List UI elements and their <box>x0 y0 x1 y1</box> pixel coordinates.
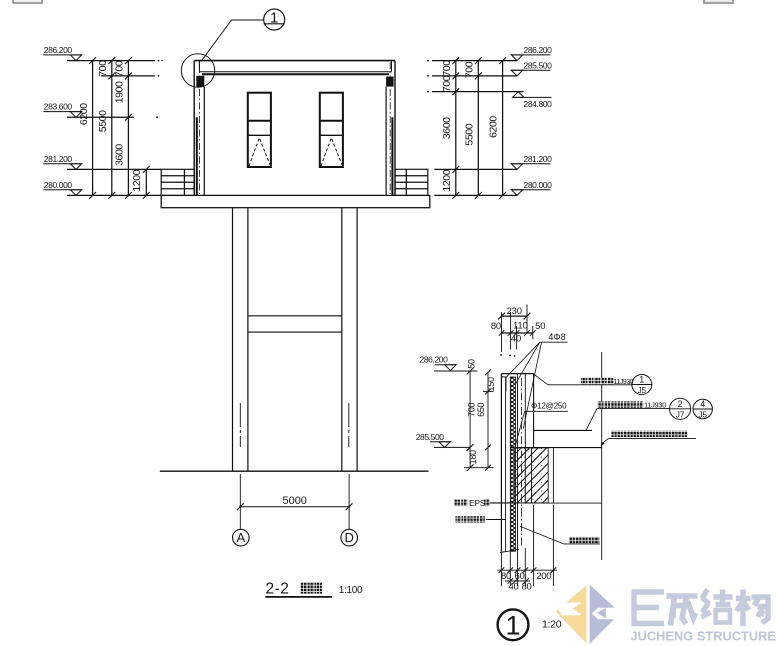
svg-text:1: 1 <box>270 10 278 27</box>
svg-text:110: 110 <box>513 321 528 332</box>
svg-text:1200: 1200 <box>441 169 453 191</box>
svg-text:286.200: 286.200 <box>524 45 553 55</box>
svg-text:1900: 1900 <box>113 81 125 103</box>
svg-text:700: 700 <box>441 60 453 77</box>
svg-text:200: 200 <box>536 571 551 582</box>
svg-text:D: D <box>345 530 354 545</box>
svg-text:286.200: 286.200 <box>44 45 73 55</box>
svg-text:283.600: 283.600 <box>44 102 73 112</box>
svg-text:80: 80 <box>522 582 532 593</box>
svg-text:180: 180 <box>468 450 478 464</box>
svg-text:80: 80 <box>501 571 511 582</box>
svg-text:JUCHENG STRUCTURE: JUCHENG STRUCTURE <box>631 629 776 643</box>
svg-text:3600: 3600 <box>441 117 453 139</box>
svg-text:281.200: 281.200 <box>44 154 73 164</box>
svg-text:1:20: 1:20 <box>542 619 562 631</box>
svg-text:2-2: 2-2 <box>266 580 290 597</box>
svg-text:50: 50 <box>467 359 477 369</box>
svg-text:281.200: 281.200 <box>524 154 553 164</box>
svg-text:A: A <box>236 530 245 545</box>
svg-text:EPS: EPS <box>469 498 486 508</box>
svg-text:80: 80 <box>491 321 501 332</box>
svg-text:2: 2 <box>678 399 683 409</box>
svg-text:Φ12@250: Φ12@250 <box>531 402 567 411</box>
svg-text:4: 4 <box>700 399 705 409</box>
svg-text:280.000: 280.000 <box>44 180 73 190</box>
svg-text:285.500: 285.500 <box>416 432 445 442</box>
svg-text:700: 700 <box>113 60 125 77</box>
svg-text:1: 1 <box>505 610 520 640</box>
svg-text:6200: 6200 <box>78 103 90 125</box>
svg-text:J7: J7 <box>676 411 685 420</box>
svg-text:286.200: 286.200 <box>420 355 449 365</box>
svg-text:650: 650 <box>476 402 486 416</box>
svg-text:284.800: 284.800 <box>524 99 553 109</box>
svg-text:1:100: 1:100 <box>339 585 363 596</box>
svg-text:40: 40 <box>509 582 519 593</box>
svg-text:50: 50 <box>535 321 545 332</box>
svg-text:5500: 5500 <box>97 110 109 132</box>
svg-text:3600: 3600 <box>113 144 125 166</box>
svg-text:5500: 5500 <box>463 123 475 145</box>
svg-text:5000: 5000 <box>282 495 306 507</box>
svg-text:280.000: 280.000 <box>524 180 553 190</box>
svg-text:700: 700 <box>467 402 477 416</box>
svg-text:150: 150 <box>486 377 496 391</box>
svg-text:1: 1 <box>639 375 644 385</box>
svg-text:285.500: 285.500 <box>524 60 553 70</box>
svg-text:J5: J5 <box>698 411 707 420</box>
svg-text:230: 230 <box>507 306 522 317</box>
svg-text:1200: 1200 <box>131 169 143 191</box>
svg-text:J5: J5 <box>638 386 647 395</box>
svg-text:700: 700 <box>441 75 453 92</box>
svg-text:40: 40 <box>511 333 521 344</box>
svg-text:700: 700 <box>463 61 475 78</box>
svg-text:700: 700 <box>97 60 109 77</box>
svg-text:4Φ8: 4Φ8 <box>548 332 565 342</box>
svg-text:6200: 6200 <box>488 116 500 138</box>
